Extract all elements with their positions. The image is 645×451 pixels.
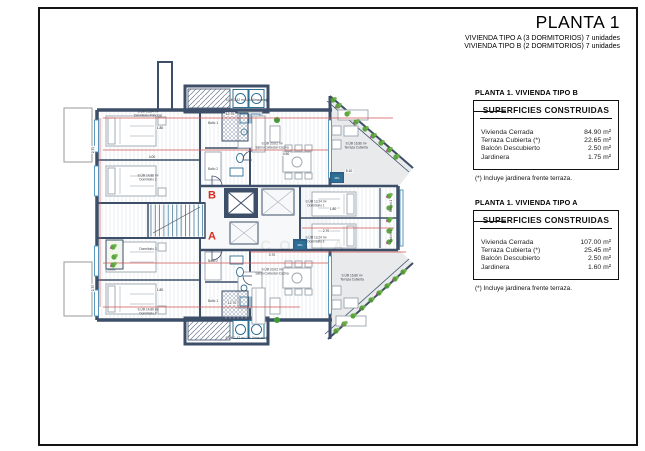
table-vivienda-a: PLANTA 1. VIVIENDA TIPO A SUPERFICIES CO… [473, 198, 619, 292]
row-label: Balcón Descubierto [481, 255, 540, 263]
table-row: Terraza Cubierta (*) 25.45 m² [481, 247, 611, 255]
row-value: 2.50 m² [588, 255, 611, 263]
superficies-box: SUPERFICIES CONSTRUIDAS Vivienda Cerrada… [473, 100, 619, 170]
drawing-sheet-page: COSTA S.Útil 15,84 m² Dormitorio Princip… [0, 0, 645, 451]
dining-table [283, 261, 312, 295]
subtitle-tipo-a: VIVIENDA TIPO A (3 DORMITORIOS) 7 unidad… [464, 35, 620, 43]
table-row: Jardinera 1.60 m² [481, 264, 611, 272]
subtitle-tipo-b: VIVIENDA TIPO B (2 DORMITORIOS) 7 unidad… [464, 43, 620, 51]
sofa [252, 116, 265, 152]
superficies-box: SUPERFICIES CONSTRUIDAS Vivienda Cerrada… [473, 210, 619, 280]
row-value: 2.50 m² [588, 145, 611, 153]
page-title: PLANTA 1 [464, 13, 620, 32]
exterior-elements [64, 108, 92, 316]
table-vivienda-b: PLANTA 1. VIVIENDA TIPO B SUPERFICIES CO… [473, 88, 619, 182]
row-label: Terraza Cubierta (*) [481, 247, 540, 255]
row-value: 1.60 m² [588, 264, 611, 272]
row-label: Vivienda Cerrada [481, 129, 533, 137]
watermark: COSTA [260, 238, 351, 255]
row-value: 22.65 m² [584, 137, 611, 145]
title-block: PLANTA 1 VIVIENDA TIPO A (3 DORMITORIOS)… [464, 13, 620, 50]
row-value: 25.45 m² [584, 247, 611, 255]
row-value: 84.90 m² [584, 129, 611, 137]
row-label: Terraza Cubierta (*) [481, 137, 540, 145]
box-title: SUPERFICIES CONSTRUIDAS [480, 101, 612, 119]
table-row: Terraza Cubierta (*) 22.65 m² [481, 137, 611, 145]
table-row: Balcón Descubierto 2.50 m² [481, 255, 611, 263]
table-header: PLANTA 1. VIVIENDA TIPO B [475, 88, 619, 97]
row-value: 107.00 m² [580, 239, 611, 247]
row-label: Jardinera [481, 154, 509, 162]
row-label: Vivienda Cerrada [481, 239, 533, 247]
bed [106, 284, 156, 314]
bed [312, 192, 356, 216]
table-row: Balcón Descubierto 2.50 m² [481, 145, 611, 153]
row-value: 1.75 m² [588, 154, 611, 162]
bed [106, 166, 156, 196]
table-row: Jardinera 1.75 m² [481, 154, 611, 162]
bed [106, 116, 156, 146]
footnote: (*) Incluye jardinera frente terraza. [475, 175, 619, 182]
sofa [252, 288, 265, 324]
elevator-shaft [224, 188, 258, 218]
table-header: PLANTA 1. VIVIENDA TIPO A [475, 198, 619, 207]
footnote: (*) Incluye jardinera frente terraza. [475, 285, 619, 292]
box-title: SUPERFICIES CONSTRUIDAS [480, 211, 612, 229]
row-label: Jardinera [481, 264, 509, 272]
table-row: Vivienda Cerrada 84.90 m² [481, 129, 611, 137]
table-row: Vivienda Cerrada 107.00 m² [481, 239, 611, 247]
row-label: Balcón Descubierto [481, 145, 540, 153]
